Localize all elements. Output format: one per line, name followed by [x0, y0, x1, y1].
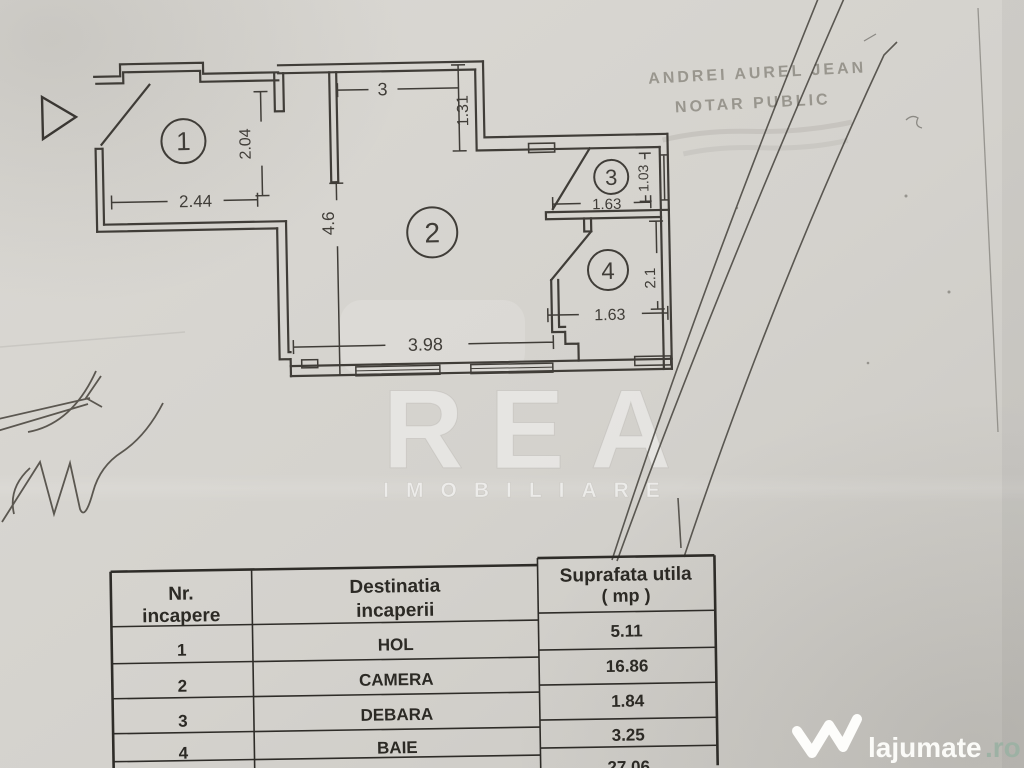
- row2-destination: CAMERA: [359, 670, 434, 690]
- row3-nr: 3: [178, 712, 188, 731]
- row3-area: 1.84: [611, 691, 645, 711]
- lajumate-logo-text: lajumate: [868, 732, 982, 763]
- dim-3: 3: [377, 79, 387, 99]
- dim-4-6: 4.6: [319, 211, 338, 235]
- row3-destination: DEBARA: [360, 705, 433, 725]
- header-dest-line1: Destinatia: [349, 576, 441, 598]
- header-area-line2: ( mp ): [601, 585, 650, 606]
- room-1-number: 1: [176, 126, 191, 156]
- row2-nr: 2: [177, 677, 187, 696]
- room-2-number: 2: [424, 217, 440, 248]
- row1-nr: 1: [177, 641, 187, 660]
- row2-area: 16.86: [606, 656, 649, 676]
- dim-1-31: 1.31: [455, 95, 473, 127]
- dim-2-1: 2.1: [642, 268, 659, 289]
- row4-area: 3.25: [612, 725, 645, 745]
- dim-1-63-room3: 1.63: [592, 196, 622, 214]
- header-dest-line2: incaperii: [356, 600, 434, 622]
- header-nr-line1: Nr.: [168, 583, 194, 604]
- scanned-floorplan-document: ANDREI AUREL JEAN NOTAR PUBLIC: [0, 0, 1024, 768]
- rea-watermark: REA IMOBILIARE: [383, 367, 697, 502]
- room-4-number: 4: [601, 258, 615, 285]
- dim-3-98: 3.98: [408, 334, 443, 355]
- total-area-partial: 27.06: [607, 757, 650, 768]
- dim-2-44: 2.44: [179, 192, 212, 212]
- header-nr-line2: incapere: [142, 605, 220, 627]
- room-3-number: 3: [605, 165, 618, 190]
- document-canvas: ANDREI AUREL JEAN NOTAR PUBLIC: [0, 0, 1024, 768]
- header-area-line1: Suprafata utila: [560, 564, 693, 587]
- row1-destination: HOL: [378, 635, 414, 655]
- row4-destination: BAIE: [377, 738, 418, 758]
- dim-2-04: 2.04: [237, 128, 255, 160]
- lajumate-logo-tld: .ro: [985, 732, 1021, 763]
- paper-edge-strip: [1002, 0, 1024, 768]
- row4-nr: 4: [179, 744, 189, 763]
- dim-1-63-room4: 1.63: [594, 307, 626, 325]
- dim-1-03: 1.03: [635, 164, 652, 192]
- row1-area: 5.11: [610, 621, 642, 641]
